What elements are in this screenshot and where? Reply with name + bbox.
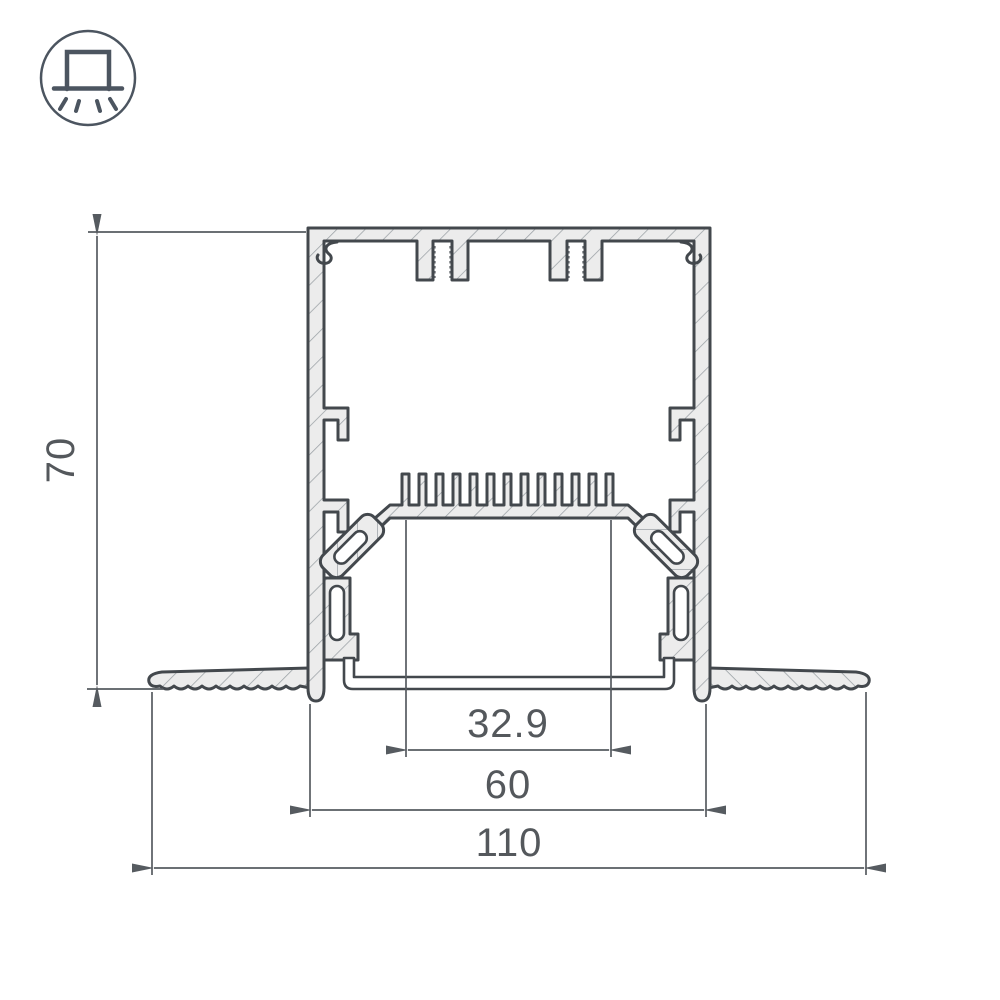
- dimension-height: 70: [39, 232, 306, 689]
- recessed-light-icon: [41, 31, 135, 125]
- dimension-overall-width-label: 110: [476, 821, 543, 865]
- diffuser-retainers: [324, 578, 694, 660]
- right-spring-clip: [631, 511, 702, 582]
- dimension-inner-width: 32.9: [406, 520, 611, 757]
- left-flange: [149, 668, 310, 689]
- light-rays: [60, 99, 116, 111]
- technical-drawing: 70 32.9 60 110: [0, 0, 1000, 1000]
- right-retainer-slot: [674, 586, 688, 640]
- left-retainer-slot: [330, 586, 344, 640]
- diffuser-tray: [344, 658, 674, 689]
- dimension-body-width-label: 60: [485, 763, 532, 807]
- profile-body: [308, 228, 710, 701]
- left-spring-clip: [317, 511, 388, 582]
- heatsink: [351, 474, 667, 549]
- dimension-inner-width-label: 32.9: [467, 702, 549, 746]
- right-flange: [708, 668, 869, 689]
- dimension-height-label: 70: [39, 437, 83, 484]
- drawing-canvas: 70 32.9 60 110: [0, 0, 1000, 1000]
